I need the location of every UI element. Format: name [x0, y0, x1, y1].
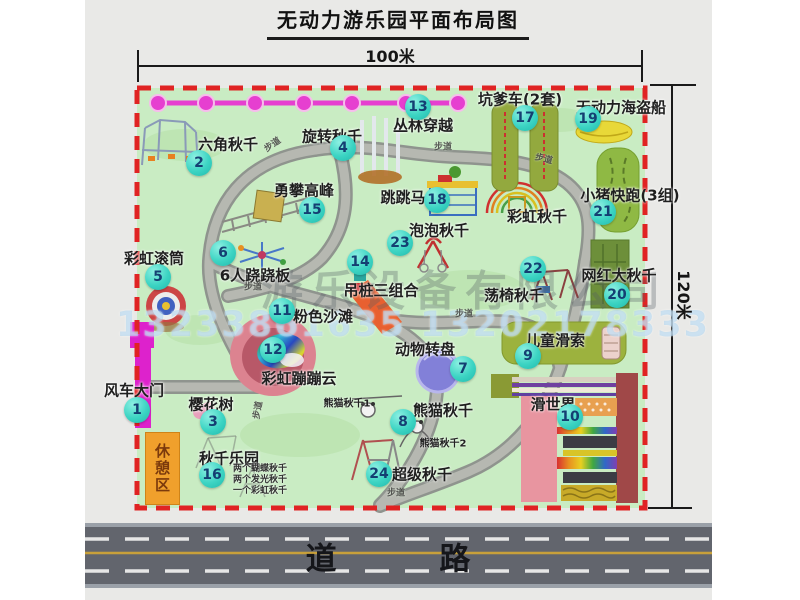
label-rainbow-cloud: 彩虹蹦蹦云	[261, 368, 336, 389]
badge-20: 20	[604, 282, 630, 308]
footpath-label-4: 步道	[244, 280, 262, 293]
badge-14: 14	[347, 249, 373, 275]
label-pink-beach: 粉色沙滩	[293, 306, 353, 327]
badge-5: 5	[145, 264, 171, 290]
rest-area-label: 休憩区	[152, 443, 173, 494]
label-hexagon-swing: 六角秋千	[198, 134, 258, 155]
screenshot-canvas: 无动力游乐园平面布局图 游乐设备有限公司 13233861635 1320217…	[0, 0, 800, 600]
label-animal-carousel: 动物转盘	[395, 339, 455, 360]
badge-24: 24	[366, 461, 392, 487]
badge-2: 2	[186, 150, 212, 176]
label-climbing-peak: 勇攀高峰	[274, 180, 334, 201]
badge-18: 18	[424, 187, 450, 213]
badge-8: 8	[390, 409, 416, 435]
label-bubble-swing: 泡泡秋千	[409, 220, 469, 241]
label-panda-swing-1: 熊猫秋千1	[324, 395, 371, 410]
label-jump-horse: 跳跳马	[380, 187, 425, 208]
badge-13: 13	[405, 94, 431, 120]
rest-area-box: 休憩区	[145, 432, 180, 505]
swing-note-2: 两个发光秋千	[233, 475, 287, 486]
badge-7: 7	[450, 356, 476, 382]
badge-21: 21	[590, 199, 616, 225]
page-title: 无动力游乐园平面布局图	[267, 4, 529, 40]
label-panda-swing: 熊猫秋千	[413, 400, 473, 421]
badge-23: 23	[387, 230, 413, 256]
label-chair-swing: 荡椅秋千	[484, 285, 544, 306]
badge-11: 11	[269, 298, 295, 324]
badge-16: 16	[199, 462, 225, 488]
footpath-label-2: 步道	[434, 140, 452, 153]
badge-15: 15	[299, 197, 325, 223]
badge-17: 17	[512, 105, 538, 131]
label-super-swing: 超级秋千	[392, 464, 452, 485]
badge-4: 4	[330, 135, 356, 161]
badge-6: 6	[210, 240, 236, 266]
badge-3: 3	[200, 409, 226, 435]
footpath-label-5: 步道	[455, 307, 473, 320]
badge-9: 9	[515, 343, 541, 369]
badge-12: 12	[260, 337, 286, 363]
road-label: 道 路	[260, 534, 517, 579]
label-panda-swing-2: 熊猫秋千2	[420, 435, 467, 450]
dimension-height-label: 120米	[673, 270, 697, 319]
dimension-width-label: 100米	[365, 43, 414, 67]
swing-note-1: 两个蝴蝶秋千	[233, 464, 287, 475]
label-rainbow-swing-arcs: 彩虹秋千	[507, 206, 567, 227]
swing-note-3: 一个彩虹秋千	[233, 486, 287, 497]
badge-22: 22	[520, 256, 546, 282]
badge-19: 19	[575, 106, 601, 132]
badge-1: 1	[124, 397, 150, 423]
label-hanging-piles: 吊桩三组合	[343, 280, 418, 301]
badge-10: 10	[557, 404, 583, 430]
swing-park-notes: 两个蝴蝶秋千 两个发光秋千 一个彩虹秋千	[233, 464, 287, 497]
footpath-label-7: 步道	[387, 486, 405, 499]
